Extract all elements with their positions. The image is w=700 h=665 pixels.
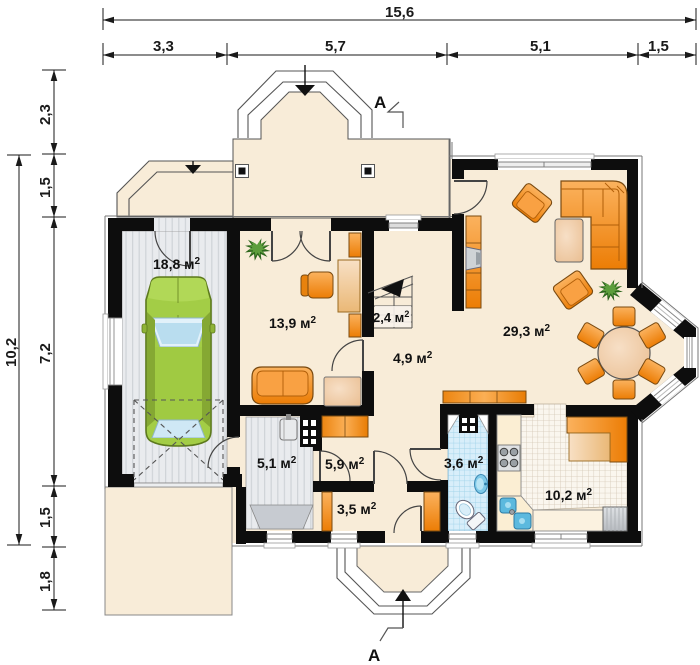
svg-text:18,8 м2: 18,8 м2 [153,256,201,272]
svg-text:10,2 м2: 10,2 м2 [545,487,593,503]
svg-text:2,4 м2: 2,4 м2 [373,309,409,325]
svg-text:1,5: 1,5 [37,177,54,198]
svg-text:29,3 м2: 29,3 м2 [503,323,551,339]
svg-text:7,2: 7,2 [37,343,54,364]
svg-text:5,7: 5,7 [325,38,346,55]
svg-text:15,6: 15,6 [385,4,414,21]
svg-text:2,3: 2,3 [37,104,54,125]
svg-text:10,2: 10,2 [3,338,20,367]
svg-text:13,9 м2: 13,9 м2 [269,315,317,331]
svg-text:1,5: 1,5 [37,507,54,528]
svg-text:1,8: 1,8 [37,571,54,592]
svg-text:A: A [374,93,386,112]
svg-text:A: A [368,646,380,665]
svg-text:3,3: 3,3 [153,38,174,55]
svg-text:5,1: 5,1 [530,38,551,55]
svg-text:1,5: 1,5 [648,38,669,55]
